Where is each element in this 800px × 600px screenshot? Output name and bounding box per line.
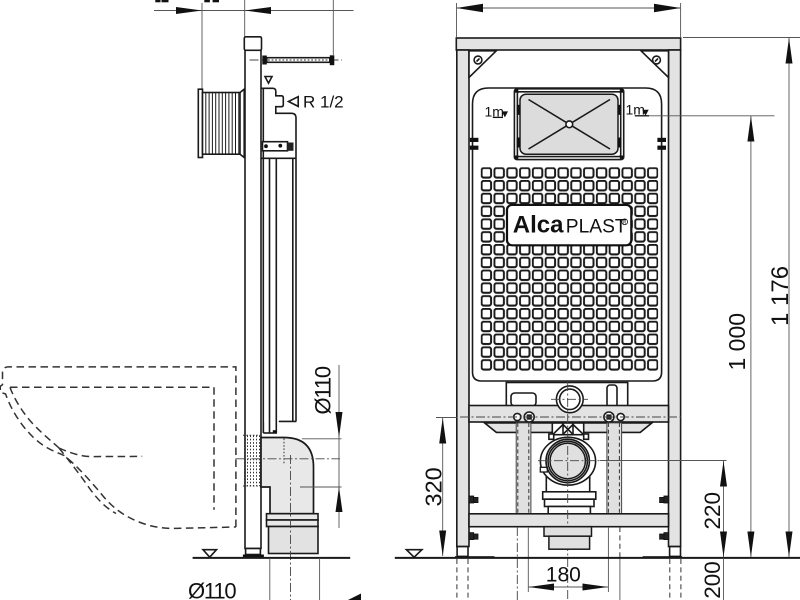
svg-text:PLAST: PLAST bbox=[566, 216, 627, 237]
svg-text:1 176: 1 176 bbox=[767, 266, 794, 326]
svg-text:Alca: Alca bbox=[513, 211, 564, 238]
svg-text:220: 220 bbox=[700, 492, 725, 530]
svg-text:1 000: 1 000 bbox=[724, 313, 750, 371]
svg-text:320: 320 bbox=[421, 467, 447, 506]
svg-text:180: 180 bbox=[546, 564, 581, 587]
svg-text:Ø110: Ø110 bbox=[188, 578, 236, 600]
svg-text:1m: 1m bbox=[626, 102, 645, 118]
svg-text:200: 200 bbox=[700, 561, 725, 599]
svg-text:R 1/2: R 1/2 bbox=[303, 93, 344, 112]
svg-text:Ø110: Ø110 bbox=[311, 366, 336, 414]
